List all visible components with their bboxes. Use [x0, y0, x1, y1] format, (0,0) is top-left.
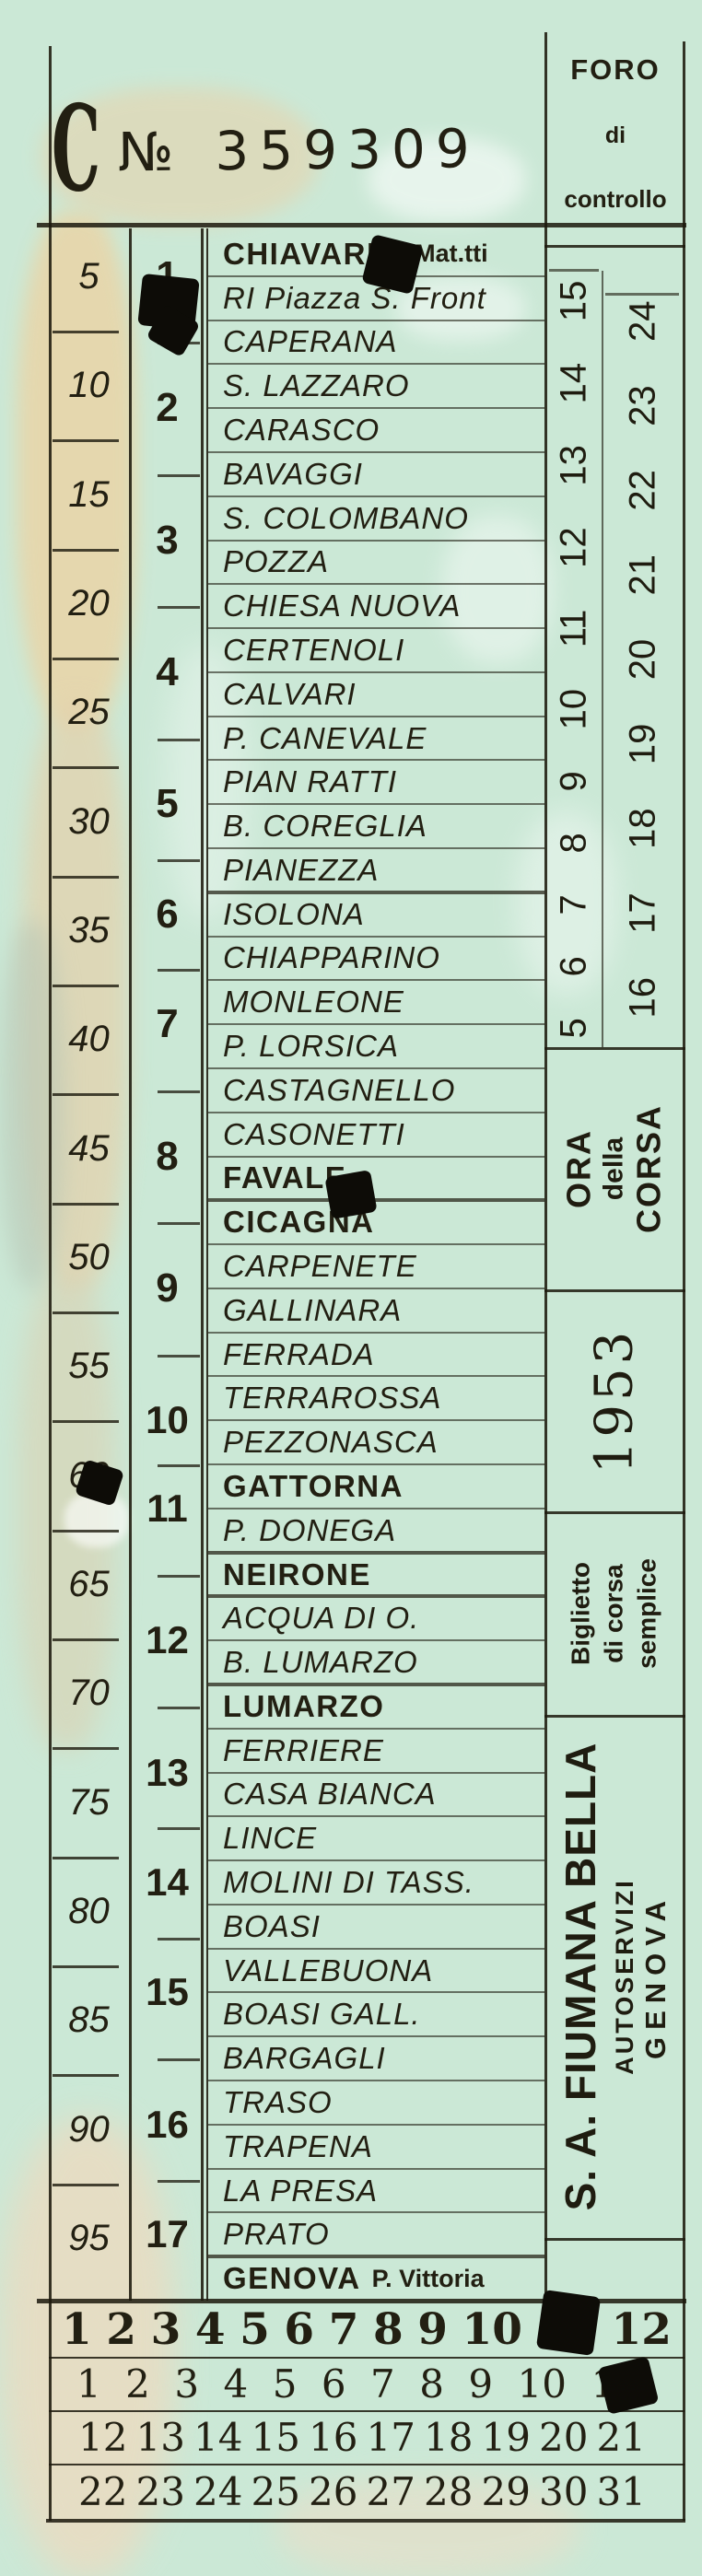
station-row: GATTORNA: [208, 1464, 544, 1509]
station-name: NEIRONE: [223, 1557, 371, 1592]
ticket-type-line: Biglietto: [565, 1562, 598, 1665]
station-row: TRAPENA: [208, 2125, 544, 2169]
station-name: ACQUA DI O.: [223, 1601, 419, 1636]
station-row-separator: [208, 1815, 544, 1817]
year-label: 1953: [584, 1327, 644, 1474]
zone-number: 10: [134, 1397, 201, 1443]
hour-value: 13: [553, 445, 594, 486]
fare-value: 45: [49, 1126, 129, 1171]
calendar-day: 31: [597, 2469, 646, 2514]
calendar-day: 15: [252, 2415, 300, 2460]
calendar-day: 23: [136, 2469, 185, 2514]
station-row: CAPERANA: [208, 321, 544, 365]
calendar-day: 11: [591, 2361, 639, 2407]
station-row-separator: [208, 759, 544, 761]
fare-separator-dash: [53, 1420, 119, 1423]
station-row-separator: [208, 1463, 544, 1465]
company-sub-line: GENOVA: [639, 1894, 673, 2059]
ticket-type-line: di corsa: [598, 1564, 631, 1662]
station-row-separator: [208, 1023, 544, 1025]
fare-separator-dash: [53, 1638, 119, 1641]
calendar-day: 30: [539, 2469, 588, 2514]
zone-number: 15: [134, 1969, 201, 2015]
calendar-day: 9: [468, 2361, 493, 2407]
station-row: S. LAZZARO: [208, 364, 544, 408]
zone-separator-dash: [158, 1090, 200, 1093]
company-bottom-line: [544, 2238, 685, 2241]
fare-value: 60: [49, 1453, 129, 1498]
zone-number: 13: [134, 1750, 201, 1796]
fare-value: 55: [49, 1344, 129, 1388]
hour-value: 11: [553, 609, 594, 647]
station-row: MOLINI DI TASS.: [208, 1860, 544, 1905]
station-row: GENOVAP. Vittoria: [208, 2256, 544, 2301]
calendar-month: 3: [151, 2304, 181, 2355]
station-row-separator: [208, 716, 544, 717]
hour-value: 15: [553, 280, 594, 321]
station-row-separator: [208, 671, 544, 673]
station-row-separator: [208, 1728, 544, 1730]
fare-separator-dash: [53, 2074, 119, 2077]
calendar-day: 20: [539, 2415, 588, 2460]
station-row: BOASI: [208, 1905, 544, 1949]
station-name: GALLINARA: [223, 1293, 402, 1328]
hour-value: 23: [622, 385, 663, 426]
zone-number: 11: [134, 1486, 201, 1532]
station-name: BAVAGGI: [223, 457, 363, 492]
zone-separator-dash: [158, 1464, 200, 1467]
calendar-day: 18: [424, 2415, 473, 2460]
hour-value: 17: [622, 892, 663, 934]
calendar-day: 1: [76, 2361, 101, 2407]
station-row-separator: [208, 2035, 544, 2037]
station-row: CARPENETE: [208, 1244, 544, 1288]
zone-separator-dash: [158, 2180, 200, 2183]
station-row-separator: [208, 1288, 544, 1289]
numero-symbol: №: [118, 121, 184, 184]
zone-separator-dash: [158, 1938, 200, 1941]
station-name: ISOLONA: [223, 897, 365, 932]
station-row: FAVALE: [208, 1157, 544, 1201]
station-row-separator: [208, 1551, 544, 1555]
station-row-separator: [208, 1243, 544, 1245]
station-row-separator: [208, 1683, 544, 1686]
calendar-month: 4: [195, 2304, 226, 2355]
fare-separator-dash: [53, 1965, 119, 1968]
station-row-separator: [208, 1419, 544, 1421]
fare-separator-dash: [53, 1857, 119, 1859]
ora-della-corsa-box: ORA della CORSA: [544, 1047, 683, 1289]
station-name: TERRAROSSA: [223, 1381, 441, 1416]
zone-number: 12: [134, 1617, 201, 1663]
fare-separator-dash: [53, 1093, 119, 1096]
fare-value: 35: [49, 908, 129, 952]
calendar-month: 10: [462, 2304, 522, 2355]
station-row: VALLEBUONA: [208, 1949, 544, 1993]
fare-separator-dash: [53, 1747, 119, 1750]
station-name: LINCE: [223, 1821, 317, 1856]
station-name: CHIESA NUOVA: [223, 589, 461, 624]
station-row-separator: [208, 1067, 544, 1069]
zone-number: 2: [134, 385, 201, 431]
fare-value: 75: [49, 1780, 129, 1824]
company-sub-line: AUTOSERVIZI: [611, 1878, 639, 2075]
station-row: FERRADA: [208, 1333, 544, 1377]
station-row: P. LORSICA: [208, 1024, 544, 1068]
station-name: CARPENETE: [223, 1249, 417, 1284]
station-name: FAVALE: [223, 1160, 346, 1195]
station-row-separator: [208, 1594, 544, 1598]
ora-line: ORA: [559, 1129, 598, 1208]
station-row: B. COREGLIA: [208, 804, 544, 848]
station-name: S. COLOMBANO: [223, 501, 469, 536]
zone-separator-dash: [158, 1222, 200, 1225]
fare-separator-dash: [53, 331, 119, 333]
hour-value: 22: [622, 470, 663, 511]
station-name: BARGAGLI: [223, 2041, 386, 2076]
foro-line: FORO: [570, 53, 661, 87]
fare-separator-dash: [53, 2184, 119, 2186]
zone-separator-dash: [158, 1827, 200, 1830]
hour-value: 18: [622, 808, 663, 849]
station-name: PIANEZZA: [223, 853, 379, 888]
hours-inner-row: 56789101112131415: [544, 271, 602, 1047]
station-row: FERRIERE: [208, 1729, 544, 1773]
fare-scale-column: 5101520253035404550556065707580859095: [49, 232, 129, 2301]
station-row: CASTAGNELLO: [208, 1068, 544, 1113]
hour-value: 7: [553, 894, 594, 915]
calendar-day: 25: [252, 2469, 300, 2514]
station-name: CICAGNA: [223, 1205, 375, 1240]
zone-separator-dash: [158, 739, 200, 741]
station-row-separator: [208, 979, 544, 981]
fare-separator-dash: [53, 439, 119, 442]
header-rule: [37, 223, 686, 227]
station-name: VALLEBUONA: [223, 1953, 433, 1988]
station-row: POZZA: [208, 541, 544, 585]
calendar-day: 5: [273, 2361, 298, 2407]
fare-separator-dash: [53, 1203, 119, 1206]
station-row-separator: [208, 1156, 544, 1158]
fare-value: 50: [49, 1235, 129, 1279]
company-box: S. A. FIUMANA BELLA AUTOSERVIZI GENOVA: [544, 1715, 683, 2238]
fare-value: 20: [49, 581, 129, 625]
series-letter: C: [52, 85, 85, 223]
hour-value: 20: [622, 638, 663, 680]
station-name: P. LORSICA: [223, 1029, 399, 1064]
zone-separator-dash: [158, 342, 200, 344]
zone-number: 14: [134, 1859, 201, 1906]
station-row: BOASI GALL.: [208, 1992, 544, 2036]
zone-number: 8: [134, 1134, 201, 1180]
calendar-day: 19: [482, 2415, 531, 2460]
zone-separator-dash: [158, 1575, 200, 1578]
station-name: CASTAGNELLO: [223, 1073, 455, 1108]
station-row: CARASCO: [208, 408, 544, 452]
calendar-day: 8: [419, 2361, 444, 2407]
station-row-separator: [208, 1198, 544, 1202]
station-row: CICAGNA: [208, 1200, 544, 1244]
station-name: BOASI: [223, 1909, 321, 1944]
fare-value: 30: [49, 799, 129, 844]
station-name: RI Piazza S. Front: [223, 281, 486, 316]
station-suffix: P. Vittoria: [372, 2265, 485, 2293]
station-row-separator: [208, 1948, 544, 1950]
hour-value: 16: [622, 977, 663, 1019]
year-box: 1953: [544, 1289, 683, 1511]
calendar-day: 28: [424, 2469, 473, 2514]
fare-value: 25: [49, 690, 129, 734]
zone-separator-dash: [158, 859, 200, 862]
station-name: MOLINI DI TASS.: [223, 1865, 474, 1900]
calendar-day: 27: [367, 2469, 415, 2514]
station-name: LA PRESA: [223, 2174, 378, 2209]
station-name: FERRIERE: [223, 1733, 384, 1768]
hour-value: 6: [553, 956, 594, 976]
zone-separator-dash: [158, 1355, 200, 1358]
station-suffix: P. Mat.tti: [388, 239, 488, 268]
calendar-days-row-2: 12131415161718192021: [49, 2412, 684, 2463]
calendar-day: 21: [597, 2415, 646, 2460]
fare-value: 90: [49, 2107, 129, 2151]
station-name: CARASCO: [223, 413, 380, 448]
zone-separator-dash: [158, 606, 200, 609]
hour-value: 9: [553, 771, 594, 791]
calendar-day: 26: [309, 2469, 357, 2514]
calendar-month: 9: [417, 2304, 448, 2355]
fare-value: 5: [49, 254, 129, 298]
calendar-month: 5: [240, 2304, 270, 2355]
station-name: GENOVA: [223, 2261, 361, 2296]
serial-digits: 359309: [215, 117, 480, 182]
station-row-separator: [208, 847, 544, 849]
fare-value: 85: [49, 1998, 129, 2042]
station-name: GATTORNA: [223, 1469, 404, 1504]
calendar-months-row: 123456789101112: [49, 2302, 684, 2356]
calendar-day: 6: [322, 2361, 346, 2407]
fare-value: 65: [49, 1562, 129, 1606]
station-row-separator: [208, 275, 544, 277]
ticket-type-line: semplice: [631, 1558, 664, 1669]
station-row: P. DONEGA: [208, 1509, 544, 1553]
fare-value: 40: [49, 1017, 129, 1061]
station-name: PEZZONASCA: [223, 1425, 439, 1460]
station-row: PRATO: [208, 2212, 544, 2256]
calendar-day: 13: [136, 2415, 185, 2460]
station-row: LINCE: [208, 1816, 544, 1860]
station-row: CALVARI: [208, 672, 544, 717]
zone-column: 1234567891011121314151617: [134, 232, 201, 2301]
station-name: PIAN RATTI: [223, 764, 397, 799]
station-row-separator: [208, 407, 544, 409]
calendar-month: 12: [612, 2304, 672, 2355]
calendar-days-row-3: 22232425262728293031: [49, 2465, 684, 2517]
station-row: B. LUMARZO: [208, 1640, 544, 1684]
calendar-day: 4: [224, 2361, 249, 2407]
hour-value: 10: [553, 688, 594, 729]
fare-separator-dash: [53, 876, 119, 879]
station-name: POZZA: [223, 544, 329, 579]
calendar-day: 12: [78, 2415, 127, 2460]
station-row: LUMARZO: [208, 1684, 544, 1729]
station-row-separator: [208, 320, 544, 321]
station-row: P. CANEVALE: [208, 717, 544, 761]
calendar-day: 29: [482, 2469, 531, 2514]
station-row-separator: [208, 363, 544, 365]
station-row: TRASO: [208, 2081, 544, 2125]
zone-number: 3: [134, 518, 201, 564]
calendar-day: 10: [518, 2361, 567, 2407]
foro-line: di: [605, 122, 626, 149]
station-row: ACQUA DI O.: [208, 1596, 544, 1640]
hour-value: 8: [553, 833, 594, 853]
station-row: CHIAVARIP. Mat.tti: [208, 232, 544, 276]
fare-value: 15: [49, 472, 129, 517]
station-name: FERRADA: [223, 1337, 375, 1372]
hour-value: 5: [553, 1018, 594, 1038]
station-double-line-a: [201, 228, 204, 2301]
foro-line: controllo: [564, 185, 666, 214]
zone-number: 5: [134, 781, 201, 827]
calendar-day: 2: [125, 2361, 150, 2407]
station-row: BAVAGGI: [208, 452, 544, 496]
station-row-separator: [208, 1859, 544, 1861]
zone-number: 4: [134, 649, 201, 695]
zone-separator-dash: [158, 969, 200, 972]
fare-separator-dash: [53, 1530, 119, 1533]
station-name: TRASO: [223, 2085, 333, 2120]
station-row: CASA BIANCA: [208, 1773, 544, 1817]
fare-separator-dash: [53, 985, 119, 987]
station-row-separator: [208, 540, 544, 542]
hour-value: 12: [553, 527, 594, 568]
fare-separator-dash: [53, 1311, 119, 1314]
station-row: GALLINARA: [208, 1288, 544, 1333]
station-name: MONLEONE: [223, 985, 404, 1020]
zone-number: 7: [134, 1001, 201, 1047]
station-name: S. LAZZARO: [223, 368, 410, 403]
company-name: S. A. FIUMANA BELLA: [556, 1743, 605, 2211]
calendar-day: 16: [309, 2415, 357, 2460]
ticket-bottom-border: [46, 2519, 685, 2523]
station-row-separator: [208, 2211, 544, 2213]
zone-number: 17: [134, 2211, 201, 2257]
station-row: RI Piazza S. Front: [208, 276, 544, 321]
fare-value: 95: [49, 2216, 129, 2260]
calendar-day: 17: [367, 2415, 415, 2460]
station-row-separator: [208, 2255, 544, 2258]
station-row: PIAN RATTI: [208, 760, 544, 804]
station-name: CALVARI: [223, 677, 357, 712]
station-row-separator: [208, 2080, 544, 2081]
station-row: PEZZONASCA: [208, 1420, 544, 1464]
hour-value: 24: [622, 300, 663, 342]
fare-separator-dash: [53, 766, 119, 769]
serial-number: №359309: [118, 107, 543, 194]
station-name: CHIAVARI: [223, 237, 377, 272]
station-name: P. DONEGA: [223, 1513, 396, 1548]
foro-di-controllo-box: FORO di controllo: [548, 44, 683, 223]
station-row-separator: [208, 891, 544, 894]
station-row: LA PRESA: [208, 2169, 544, 2213]
station-row: TERRAROSSA: [208, 1376, 544, 1420]
station-column: CHIAVARIP. Mat.ttiRI Piazza S. FrontCAPE…: [208, 232, 544, 2301]
fare-value: 10: [49, 363, 129, 407]
zone-separator-dash: [158, 2058, 200, 2061]
bus-ticket: C №359309 FORO di controllo 510152025303…: [0, 0, 702, 2576]
station-row-separator: [208, 2124, 544, 2126]
fare-separator-dash: [53, 549, 119, 552]
calendar-days-row-1: 1234567891011: [49, 2359, 684, 2409]
station-row-separator: [208, 1991, 544, 1993]
station-row-separator: [208, 1332, 544, 1334]
ora-line: della: [598, 1136, 629, 1199]
station-name: CAPERANA: [223, 324, 398, 359]
station-row: ISOLONA: [208, 892, 544, 937]
calendar-day: 3: [174, 2361, 199, 2407]
station-row-separator: [208, 451, 544, 453]
station-row: PIANEZZA: [208, 848, 544, 892]
calendar-month: 6: [284, 2304, 314, 2355]
station-row-separator: [208, 1639, 544, 1641]
zone-number: 9: [134, 1265, 201, 1311]
calendar-day: 24: [193, 2469, 242, 2514]
station-row-separator: [208, 1904, 544, 1906]
station-name: CERTENOLI: [223, 633, 404, 668]
zone-number: 16: [134, 2102, 201, 2148]
station-row: CASONETTI: [208, 1113, 544, 1157]
zone-number: 1: [134, 253, 201, 299]
zone-number: 6: [134, 892, 201, 938]
station-row: CERTENOLI: [208, 628, 544, 672]
zone-separator-dash: [158, 1707, 200, 1709]
station-row-separator: [208, 803, 544, 805]
station-row-separator: [208, 1508, 544, 1509]
station-name: B. COREGLIA: [223, 809, 427, 844]
station-row: MONLEONE: [208, 980, 544, 1024]
fare-value: 70: [49, 1671, 129, 1715]
ticket-type-box: Biglietto di corsa semplice: [545, 1511, 684, 1715]
ora-line: CORSA: [629, 1104, 668, 1233]
station-row-separator: [208, 495, 544, 497]
station-row: S. COLOMBANO: [208, 496, 544, 541]
station-row-separator: [208, 1772, 544, 1774]
hour-value: 14: [553, 362, 594, 403]
calendar-day: 14: [193, 2415, 242, 2460]
calendar-month: 8: [373, 2304, 404, 2355]
hours-outer-row: 161718192021222324: [602, 271, 683, 1047]
hours-top-line: [544, 245, 685, 248]
station-row-separator: [208, 583, 544, 585]
zone-separator-dash: [158, 474, 200, 477]
station-row-separator: [208, 2168, 544, 2170]
fare-zone-divider: [129, 228, 132, 2301]
calendar-day: 22: [78, 2469, 127, 2514]
station-row-separator: [208, 936, 544, 938]
station-name: PRATO: [223, 2217, 330, 2252]
calendar-month: 11: [537, 2304, 597, 2355]
station-row-separator: [208, 627, 544, 629]
fare-separator-dash: [53, 658, 119, 660]
station-name: P. CANEVALE: [223, 721, 427, 756]
station-name: CASA BIANCA: [223, 1777, 437, 1812]
calendar-month: 1: [62, 2304, 92, 2355]
station-name: BOASI GALL.: [223, 1997, 421, 2032]
station-row-separator: [208, 1375, 544, 1377]
station-row: BARGAGLI: [208, 2036, 544, 2081]
station-row: NEIRONE: [208, 1553, 544, 1597]
station-name: TRAPENA: [223, 2129, 373, 2164]
